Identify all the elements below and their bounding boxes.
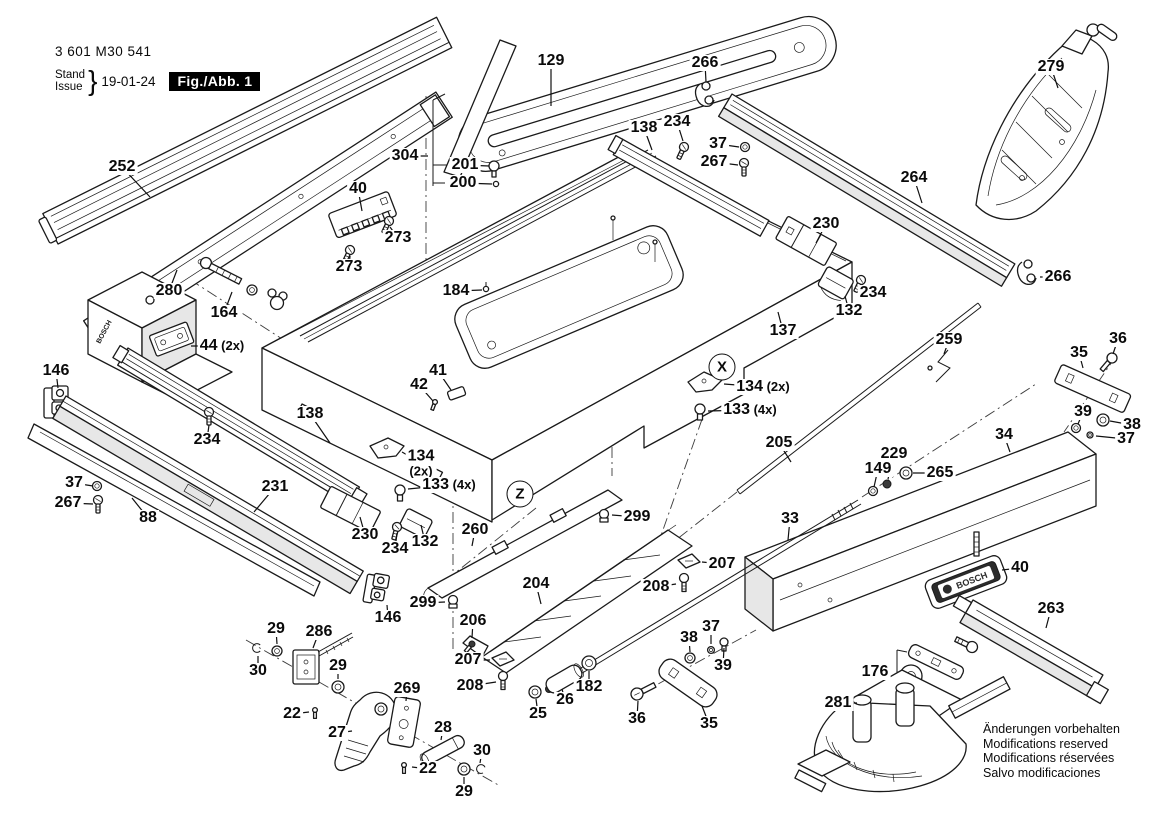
leader-230-right: [816, 224, 826, 243]
leader-39-right: [1078, 412, 1083, 424]
leader-208-left: [470, 682, 496, 686]
leader-38-bottom: [689, 638, 690, 652]
leader-206: [472, 621, 473, 638]
note-es: Salvo modificaciones: [983, 766, 1120, 781]
leader-137: [778, 312, 783, 331]
leader-134-left: [402, 452, 421, 463]
leader-299-right: [612, 515, 637, 517]
leader-132-left: [421, 525, 425, 542]
leader-273-b: [349, 256, 350, 267]
leader-146-bottom: [387, 605, 388, 618]
title-block: 3 601 M30 541 Stand Issue } 19-01-24 Fig…: [55, 44, 260, 97]
leader-lines: [0, 0, 1166, 824]
leader-88: [132, 498, 148, 518]
leader-267-left: [68, 503, 93, 504]
leader-280: [169, 270, 177, 291]
issue-label: Issue: [55, 81, 85, 93]
leader-22-a: [292, 712, 309, 714]
leader-36-right: [1113, 339, 1118, 354]
leader-200: [463, 183, 492, 184]
leader-34: [1004, 435, 1010, 452]
leader-286: [313, 632, 319, 648]
leader-38-right: [1110, 421, 1132, 425]
leader-35-bottom: [702, 706, 709, 724]
leader-231: [254, 487, 275, 512]
note-fr: Modifications réservées: [983, 751, 1120, 766]
leader-205: [779, 443, 791, 462]
leader-27: [337, 731, 352, 733]
leader-263: [1046, 609, 1051, 628]
leader-42: [419, 385, 433, 401]
leader-22-b: [412, 767, 428, 769]
leader-30-b: [480, 751, 482, 763]
leader-234-right: [862, 285, 873, 293]
leader-208-right: [656, 584, 676, 587]
leader-39-bottom: [723, 648, 724, 666]
leader-33: [788, 519, 790, 540]
leader-234-left2: [395, 533, 397, 549]
leader-26: [562, 689, 565, 700]
leader-207-right: [702, 562, 722, 564]
leader-138-top: [644, 128, 652, 150]
leader-164: [224, 292, 232, 313]
leader-279: [1051, 67, 1058, 88]
leader-234-top: [677, 122, 683, 141]
leader-267-top: [714, 162, 738, 165]
leader-234-left: [207, 425, 209, 440]
figure-label: Fig./Abb. 1: [169, 72, 260, 91]
parts-diagram-page: BOSCH: [0, 0, 1166, 824]
modification-notes: Änderungen vorbehalten Modifications res…: [983, 722, 1120, 780]
leader-184: [456, 290, 482, 291]
leader-133-right: [708, 410, 750, 411]
leader-230-left: [360, 517, 365, 535]
leader-36-bottom: [637, 701, 638, 719]
leader-41: [438, 371, 451, 390]
leader-28: [441, 728, 443, 740]
leader-35-right: [1079, 353, 1083, 368]
stand-label: Stand: [55, 69, 85, 81]
leader-252: [122, 167, 150, 197]
leader-134-right: [724, 384, 763, 387]
leader-149: [874, 469, 878, 487]
leader-25: [536, 699, 538, 714]
note-de: Änderungen vorbehalten: [983, 722, 1120, 737]
leader-273-a: [390, 227, 398, 238]
leader-260: [472, 530, 475, 546]
leader-229: [888, 454, 894, 479]
leader-29-a: [276, 629, 277, 644]
leader-146-top: [56, 371, 58, 388]
leader-269: [406, 689, 407, 701]
brace-glyph: }: [88, 65, 97, 97]
issue-date: 19-01-24: [101, 74, 155, 89]
note-en: Modifications reserved: [983, 737, 1120, 752]
leader-37-top: [718, 144, 739, 147]
leader-37-left: [74, 483, 93, 486]
leader-259: [944, 340, 949, 354]
leader-201: [465, 165, 489, 166]
leader-299-left: [423, 602, 445, 603]
leader-138-left: [310, 414, 330, 443]
leader-204: [536, 584, 541, 604]
leader-37-right: [1096, 436, 1126, 439]
leader-40-right: [1002, 568, 1020, 570]
leader-40-top: [358, 189, 362, 211]
leader-266-top: [705, 63, 706, 82]
part-number: 3 601 M30 541: [55, 44, 260, 59]
leader-132-right: [845, 296, 849, 311]
leader-133-left: [408, 485, 449, 489]
leader-264: [914, 178, 922, 203]
